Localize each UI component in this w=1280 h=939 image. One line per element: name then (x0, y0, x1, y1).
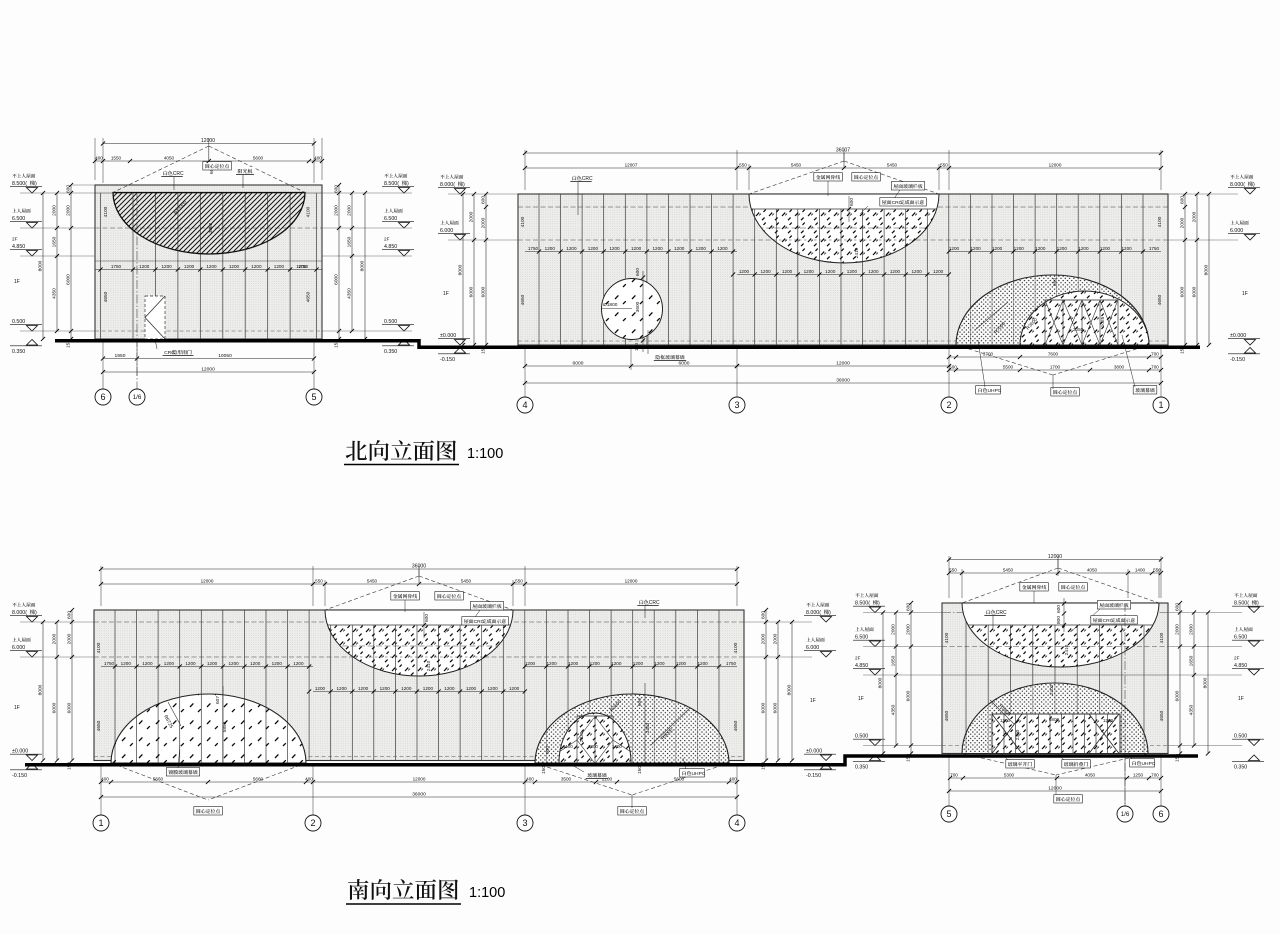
svg-text:550: 550 (1153, 567, 1161, 572)
svg-text:1F: 1F (810, 698, 816, 704)
svg-text:-0.150: -0.150 (440, 357, 455, 363)
svg-text:6.500: 6.500 (384, 216, 397, 222)
svg-text:6000: 6000 (761, 702, 767, 713)
svg-text:1200: 1200 (717, 246, 728, 251)
svg-text:8000: 8000 (458, 264, 464, 275)
svg-text:12000: 12000 (1049, 162, 1062, 167)
svg-text:400: 400 (729, 776, 737, 781)
svg-text:12000: 12000 (625, 578, 638, 583)
svg-text:0.500: 0.500 (12, 319, 25, 325)
svg-text:1750: 1750 (111, 264, 122, 269)
svg-text:4650: 4650 (96, 720, 102, 731)
svg-text:1750: 1750 (298, 264, 309, 269)
svg-text:2F: 2F (1234, 656, 1240, 661)
svg-text:1750: 1750 (726, 661, 737, 666)
svg-text:CRC: CRC (1103, 618, 1114, 624)
svg-text:1200: 1200 (633, 661, 644, 666)
svg-text:6.000: 6.000 (440, 228, 453, 234)
svg-text:700: 700 (950, 772, 958, 777)
svg-text:5500: 5500 (1003, 364, 1014, 369)
svg-text:1: 1 (98, 818, 103, 828)
svg-text:0.500: 0.500 (1234, 734, 1247, 740)
svg-text:3: 3 (734, 400, 739, 410)
svg-text:2000: 2000 (481, 217, 487, 228)
svg-text:550: 550 (315, 578, 323, 583)
svg-text:1750: 1750 (1149, 246, 1160, 251)
svg-text:1750: 1750 (104, 661, 115, 666)
svg-text:1750: 1750 (528, 246, 539, 251)
svg-text:12000: 12000 (413, 776, 426, 781)
svg-text:2300: 2300 (1015, 729, 1021, 740)
svg-text:): ) (878, 601, 880, 607)
svg-text:1200: 1200 (933, 269, 944, 274)
svg-text:1700: 1700 (1050, 364, 1061, 369)
svg-text:2000: 2000 (906, 624, 912, 635)
svg-text:8.000(: 8.000( (12, 610, 27, 616)
svg-text:6000: 6000 (67, 702, 73, 713)
svg-text:1200: 1200 (185, 661, 196, 666)
svg-text:UHPC: UHPC (1142, 761, 1156, 767)
svg-text:600: 600 (424, 614, 430, 622)
svg-text:7600: 7600 (1048, 351, 1059, 356)
svg-text:1400: 1400 (1135, 567, 1146, 572)
svg-text:12000: 12000 (201, 138, 215, 144)
svg-text:36007: 36007 (836, 147, 850, 153)
svg-text:12000: 12000 (201, 578, 214, 583)
svg-text:5: 5 (946, 809, 951, 819)
svg-text:1200: 1200 (1014, 246, 1025, 251)
svg-text:6.500: 6.500 (12, 216, 25, 222)
svg-text:5450: 5450 (461, 578, 472, 583)
svg-text:6: 6 (100, 392, 105, 402)
svg-text:1200: 1200 (466, 686, 477, 691)
svg-text:550: 550 (949, 567, 957, 572)
svg-text:8000: 8000 (38, 684, 44, 695)
svg-text:1:100: 1:100 (467, 446, 503, 462)
svg-text:4: 4 (734, 818, 739, 828)
svg-text:1200: 1200 (652, 246, 663, 251)
svg-text:1200: 1200 (139, 264, 150, 269)
svg-text:600: 600 (1056, 605, 1062, 613)
svg-text:1/6: 1/6 (1121, 811, 1130, 818)
svg-text:1250: 1250 (1133, 772, 1144, 777)
svg-text:2410: 2410 (426, 660, 432, 671)
svg-text:): ) (1257, 601, 1259, 607)
svg-text:1200: 1200 (380, 686, 391, 691)
svg-text:8.000(: 8.000( (440, 182, 455, 188)
svg-text:1200: 1200 (992, 246, 1003, 251)
svg-text:6800: 6800 (1049, 717, 1060, 722)
svg-text:650: 650 (1052, 278, 1058, 286)
svg-text:1200: 1200 (1057, 246, 1068, 251)
svg-text:550: 550 (940, 162, 948, 167)
svg-text:4050: 4050 (1087, 567, 1098, 572)
svg-text:600: 600 (761, 611, 767, 619)
svg-text:1200: 1200 (697, 661, 708, 666)
svg-text:5450: 5450 (887, 162, 898, 167)
svg-text:1200: 1200 (1035, 246, 1046, 251)
svg-text:2000: 2000 (761, 633, 767, 644)
svg-text:36000: 36000 (412, 563, 426, 569)
svg-text:1F: 1F (858, 696, 864, 702)
svg-text:4100: 4100 (96, 642, 102, 653)
svg-text:1950: 1950 (115, 353, 126, 359)
svg-text:4350: 4350 (891, 704, 897, 715)
svg-text:600: 600 (67, 611, 73, 619)
svg-text:2000: 2000 (891, 624, 897, 635)
svg-text:1/6: 1/6 (133, 394, 142, 401)
svg-text:1200: 1200 (272, 661, 283, 666)
svg-text:6000: 6000 (1180, 286, 1186, 297)
svg-text:CRC: CRC (892, 200, 903, 206)
svg-text:CRC: CRC (474, 619, 485, 625)
svg-text:8.000(: 8.000( (1230, 182, 1245, 188)
svg-text:600: 600 (334, 185, 340, 193)
svg-text:607: 607 (215, 696, 221, 704)
svg-text:900: 900 (545, 746, 551, 754)
svg-text:1200: 1200 (1078, 246, 1089, 251)
svg-text:600: 600 (481, 196, 487, 204)
svg-text:8000: 8000 (38, 260, 44, 271)
svg-text:1200: 1200 (890, 269, 901, 274)
svg-text:4650: 4650 (733, 720, 739, 731)
svg-text:4650: 4650 (306, 291, 312, 302)
svg-text:700: 700 (1151, 351, 1159, 356)
svg-text:4650: 4650 (944, 710, 950, 721)
svg-text:5: 5 (311, 392, 316, 402)
svg-text:±0.000: ±0.000 (806, 749, 822, 755)
svg-text:1200: 1200 (568, 661, 579, 666)
svg-text:1200: 1200 (739, 269, 750, 274)
svg-text:): ) (1253, 182, 1255, 188)
svg-text:6000: 6000 (481, 286, 487, 297)
svg-text:6.000: 6.000 (1230, 228, 1243, 234)
svg-text:1200: 1200 (847, 269, 858, 274)
svg-text:4100: 4100 (103, 206, 109, 217)
svg-text:1200: 1200 (1100, 246, 1111, 251)
svg-text:3500: 3500 (561, 776, 572, 781)
svg-text:): ) (829, 610, 831, 616)
svg-text:1:100: 1:100 (469, 885, 505, 901)
svg-text:6000: 6000 (334, 274, 340, 285)
svg-text:1200: 1200 (654, 661, 665, 666)
svg-text:6000: 6000 (773, 702, 779, 713)
svg-text:2000: 2000 (1192, 211, 1198, 222)
svg-text:Ø1800: Ø1800 (603, 302, 618, 308)
svg-text:1200: 1200 (611, 661, 622, 666)
svg-text:4100: 4100 (520, 216, 526, 227)
svg-text:36000: 36000 (412, 791, 426, 797)
svg-text:600: 600 (1175, 603, 1181, 611)
svg-text:800: 800 (1056, 616, 1062, 624)
svg-text:2F: 2F (12, 237, 18, 242)
svg-text:1200: 1200 (184, 264, 195, 269)
svg-text:8.500(: 8.500( (384, 181, 399, 187)
svg-text:700: 700 (1151, 772, 1159, 777)
svg-text:-0.150: -0.150 (1230, 357, 1245, 363)
svg-text:8000: 8000 (360, 260, 366, 271)
svg-text:8000: 8000 (878, 677, 884, 688)
svg-text:1200: 1200 (911, 269, 922, 274)
svg-text:3862: 3862 (208, 222, 214, 233)
svg-text:2: 2 (310, 818, 315, 828)
svg-text:0.500: 0.500 (855, 734, 868, 740)
svg-text:8.500(: 8.500( (12, 181, 27, 187)
svg-text:1200: 1200 (674, 246, 685, 251)
svg-text:2000: 2000 (469, 211, 475, 222)
svg-text:): ) (463, 182, 465, 188)
svg-text:1200: 1200 (1121, 246, 1132, 251)
svg-text:2000: 2000 (52, 633, 58, 644)
svg-text:12000: 12000 (1048, 785, 1062, 791)
svg-text:1F: 1F (1242, 291, 1248, 297)
svg-text:1400: 1400 (612, 744, 622, 749)
svg-text:8000: 8000 (1204, 264, 1210, 275)
svg-text:8000: 8000 (787, 684, 793, 695)
svg-text:1200: 1200 (782, 269, 793, 274)
svg-text:-0.150: -0.150 (12, 773, 27, 779)
svg-text:2000: 2000 (67, 633, 73, 644)
svg-text:1200: 1200 (566, 246, 577, 251)
svg-text:600: 600 (66, 185, 72, 193)
svg-text:400: 400 (95, 155, 103, 160)
svg-text:700: 700 (1151, 364, 1159, 369)
svg-text:CRC: CRC (996, 610, 1007, 616)
svg-text:1200: 1200 (590, 661, 601, 666)
svg-text:2030: 2030 (579, 731, 585, 742)
svg-text:4050: 4050 (1085, 772, 1096, 777)
svg-text:600: 600 (637, 698, 643, 706)
svg-text:2000: 2000 (1180, 217, 1186, 228)
svg-text:0.350: 0.350 (855, 765, 868, 771)
svg-text:1200: 1200 (546, 661, 557, 666)
svg-text:6000: 6000 (1175, 690, 1181, 701)
svg-text:1200: 1200 (825, 269, 836, 274)
svg-text:UHPC: UHPC (692, 771, 706, 777)
svg-text:1F: 1F (14, 705, 20, 711)
svg-text:): ) (35, 181, 37, 187)
svg-text:600: 600 (635, 268, 641, 276)
svg-text:6000: 6000 (573, 360, 584, 366)
svg-text:1200: 1200 (228, 661, 239, 666)
svg-text:1200: 1200 (949, 246, 960, 251)
svg-text:1200: 1200 (588, 246, 599, 251)
svg-text:5893: 5893 (222, 721, 228, 732)
svg-text:4.850: 4.850 (384, 244, 397, 250)
svg-text:1200: 1200 (336, 686, 347, 691)
svg-text:8.500(: 8.500( (1234, 601, 1249, 607)
svg-text:4100: 4100 (944, 632, 950, 643)
svg-text:4650: 4650 (1157, 294, 1163, 305)
svg-text:4100: 4100 (1157, 216, 1163, 227)
svg-text:6000: 6000 (66, 274, 72, 285)
svg-text:6: 6 (1158, 809, 1163, 819)
svg-text:3800: 3800 (1114, 364, 1125, 369)
svg-text:4650: 4650 (1159, 710, 1165, 721)
svg-text:UHPC: UHPC (988, 388, 1002, 394)
svg-text:600: 600 (849, 198, 855, 206)
svg-text:12000: 12000 (836, 360, 850, 366)
svg-text:1200: 1200 (274, 264, 285, 269)
svg-text:550: 550 (515, 578, 523, 583)
svg-text:4050: 4050 (164, 155, 175, 160)
svg-text:4100: 4100 (733, 642, 739, 653)
svg-text:1200: 1200 (760, 269, 771, 274)
svg-text:1F: 1F (14, 279, 20, 285)
svg-text:1200: 1200 (250, 661, 261, 666)
svg-text:1200: 1200 (609, 246, 620, 251)
svg-text:1200: 1200 (206, 264, 217, 269)
svg-text:600: 600 (1180, 196, 1186, 204)
svg-text:1800: 1800 (588, 744, 598, 749)
svg-text:1200: 1200 (293, 661, 304, 666)
svg-text:4: 4 (522, 400, 527, 410)
svg-text:1200: 1200 (229, 264, 240, 269)
svg-text:0.350: 0.350 (384, 349, 397, 355)
svg-text:500: 500 (949, 364, 957, 369)
svg-text:150: 150 (637, 766, 643, 774)
svg-text:4650: 4650 (520, 294, 526, 305)
svg-text:550: 550 (739, 162, 747, 167)
svg-text:4350: 4350 (52, 288, 58, 299)
svg-text:-0.150: -0.150 (806, 773, 821, 779)
svg-text:CRC: CRC (173, 171, 184, 177)
svg-text:6.000: 6.000 (12, 645, 25, 651)
svg-text:±0.000: ±0.000 (1230, 333, 1246, 339)
svg-text:400: 400 (101, 776, 109, 781)
svg-text:6.500: 6.500 (855, 635, 868, 641)
svg-text:3493: 3493 (645, 722, 651, 733)
svg-text:1200: 1200 (696, 246, 707, 251)
svg-text:1200: 1200 (401, 686, 412, 691)
svg-text:2F: 2F (855, 656, 861, 661)
svg-text:CRC: CRC (582, 176, 593, 182)
svg-text:1025: 1025 (1100, 316, 1106, 327)
svg-text:1200: 1200 (161, 264, 172, 269)
svg-text:8.000(: 8.000( (806, 610, 821, 616)
svg-text:4.850: 4.850 (855, 663, 868, 669)
svg-text:): ) (35, 610, 37, 616)
svg-text:5660: 5660 (153, 776, 164, 781)
svg-text:2410: 2410 (1064, 644, 1070, 655)
svg-text:1200: 1200 (207, 661, 218, 666)
svg-text:1650: 1650 (52, 236, 58, 247)
svg-text:1200: 1200 (804, 269, 815, 274)
svg-text:1200: 1200 (509, 686, 520, 691)
svg-text:6000: 6000 (679, 360, 690, 366)
svg-text:1F: 1F (1238, 696, 1244, 702)
svg-text:6000: 6000 (469, 286, 475, 297)
svg-text:1200: 1200 (358, 686, 369, 691)
svg-text:1200: 1200 (142, 661, 153, 666)
svg-text:400: 400 (314, 155, 322, 160)
svg-text:1200: 1200 (631, 246, 642, 251)
svg-text:2000: 2000 (52, 205, 58, 216)
svg-text:1200: 1200 (315, 686, 326, 691)
svg-text:400: 400 (305, 776, 313, 781)
svg-text:2F: 2F (384, 237, 390, 242)
svg-text:5450: 5450 (791, 162, 802, 167)
svg-text:4.850: 4.850 (1234, 663, 1247, 669)
svg-text:12007: 12007 (625, 162, 638, 167)
svg-text:1200: 1200 (676, 661, 687, 666)
svg-text:2000: 2000 (347, 205, 353, 216)
svg-text:6000: 6000 (52, 702, 58, 713)
svg-text:4100: 4100 (1159, 632, 1165, 643)
svg-text:10050: 10050 (218, 353, 232, 359)
svg-text:2000: 2000 (1175, 624, 1181, 635)
svg-text:8.500(: 8.500( (855, 601, 870, 607)
svg-text:2000: 2000 (334, 205, 340, 216)
svg-text:1200: 1200 (525, 661, 536, 666)
svg-text:12000: 12000 (201, 366, 215, 372)
svg-text:1200: 1200 (251, 264, 262, 269)
svg-text:600: 600 (906, 603, 912, 611)
svg-text:2000: 2000 (66, 205, 72, 216)
svg-text:1200: 1200 (487, 686, 498, 691)
svg-text:1200: 1200 (444, 686, 455, 691)
svg-text:6.500: 6.500 (1234, 635, 1247, 641)
svg-text:1200: 1200 (423, 686, 434, 691)
svg-text:5600: 5600 (253, 155, 264, 160)
svg-text:1650: 1650 (347, 236, 353, 247)
svg-text:5450: 5450 (1003, 567, 1014, 572)
svg-text:5450: 5450 (367, 578, 378, 583)
svg-text:1200: 1200 (1103, 718, 1114, 723)
svg-text:2000: 2000 (1189, 624, 1195, 635)
svg-text:4650: 4650 (103, 291, 109, 302)
svg-text:4350: 4350 (1189, 704, 1195, 715)
svg-text:5300: 5300 (1004, 772, 1015, 777)
svg-text:1100: 1100 (563, 744, 573, 749)
svg-text:2050: 2050 (1073, 327, 1084, 332)
svg-text:1200: 1200 (868, 269, 879, 274)
svg-text:3600: 3600 (635, 301, 641, 312)
svg-text:12000: 12000 (1048, 554, 1062, 560)
svg-text:6000: 6000 (906, 690, 912, 701)
svg-text:0.350: 0.350 (1234, 765, 1247, 771)
svg-text:1650: 1650 (1189, 655, 1195, 666)
svg-text:1200: 1200 (121, 661, 132, 666)
svg-text:5660: 5660 (253, 776, 264, 781)
svg-text:8000: 8000 (1203, 677, 1209, 688)
svg-text:2000: 2000 (773, 633, 779, 644)
svg-text:2: 2 (946, 400, 951, 410)
svg-text:2410: 2410 (854, 247, 860, 258)
svg-text:400: 400 (526, 776, 534, 781)
svg-text:4100: 4100 (306, 206, 312, 217)
svg-text:): ) (407, 181, 409, 187)
svg-text:1550: 1550 (111, 155, 122, 160)
svg-text:4350: 4350 (347, 288, 353, 299)
svg-text:1: 1 (1158, 400, 1163, 410)
svg-text:0.350: 0.350 (12, 349, 25, 355)
svg-text:3: 3 (522, 818, 527, 828)
svg-text:1200: 1200 (970, 246, 981, 251)
svg-text:1F: 1F (443, 291, 449, 297)
svg-text:4.850: 4.850 (12, 244, 25, 250)
svg-text:1650: 1650 (891, 655, 897, 666)
svg-text:1200: 1200 (545, 246, 556, 251)
svg-text:6.000: 6.000 (806, 645, 819, 651)
svg-text:CRC: CRC (649, 600, 660, 606)
svg-text:150: 150 (541, 766, 547, 774)
svg-text:±0.000: ±0.000 (440, 333, 456, 339)
svg-text:36000: 36000 (836, 377, 850, 383)
svg-text:2400: 2400 (1049, 684, 1055, 695)
svg-text:±0.000: ±0.000 (12, 749, 28, 755)
svg-text:0.500: 0.500 (384, 319, 397, 325)
